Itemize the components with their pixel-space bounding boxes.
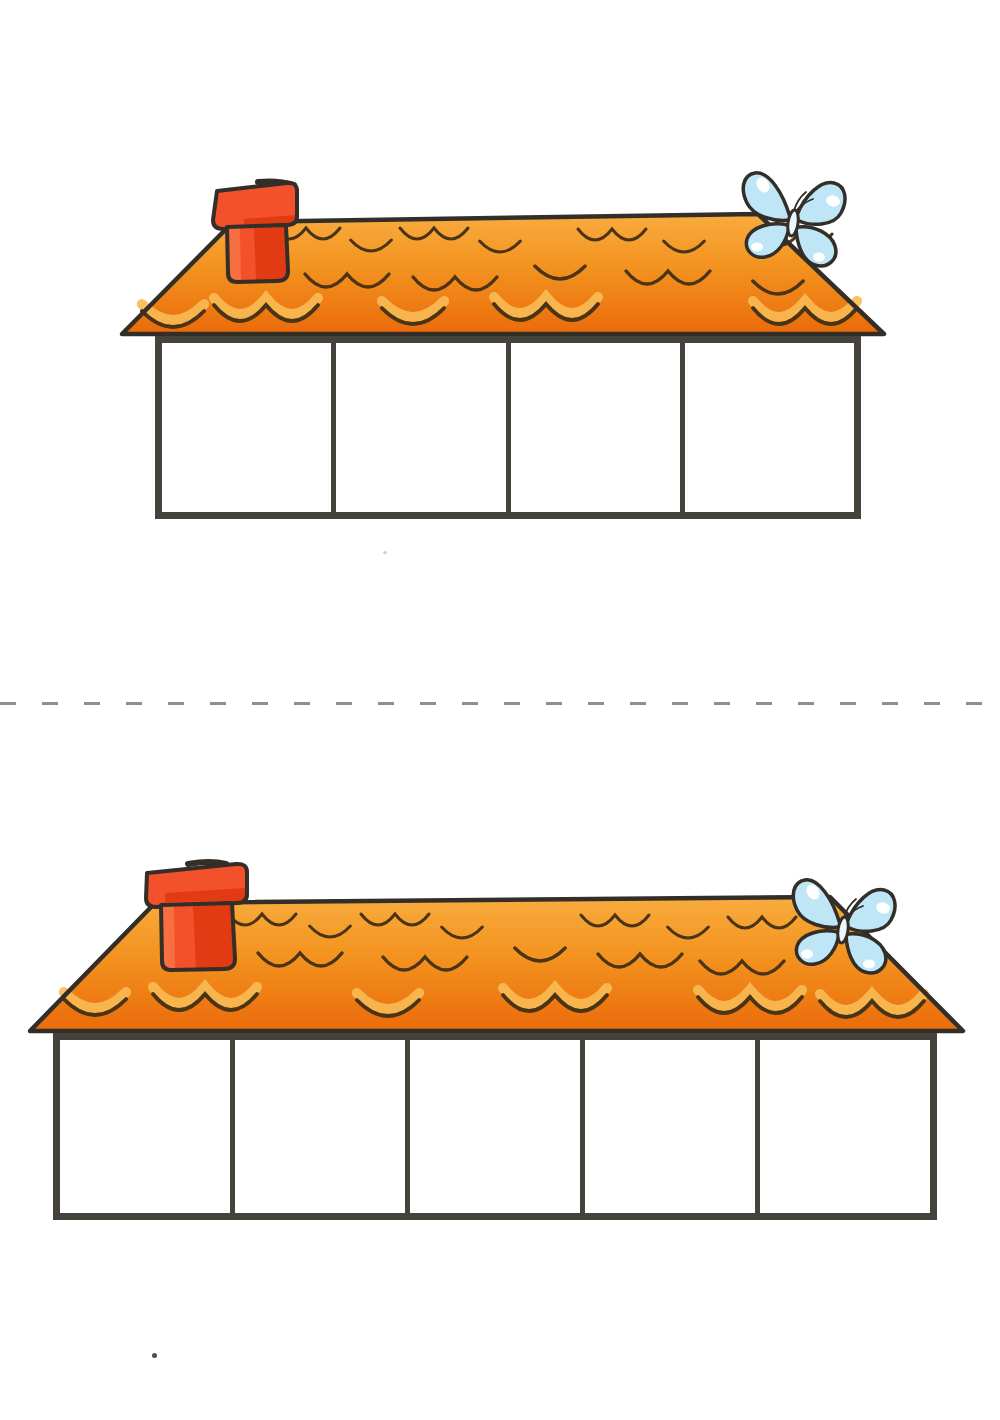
worksheet-page [0,0,1000,1420]
chimney [146,862,247,970]
print-speck [152,1353,157,1358]
chimney [213,181,297,282]
empty-box [162,343,331,512]
empty-box [60,1040,230,1213]
empty-box [511,343,680,512]
house-bottom-boxes [53,1033,937,1220]
house-top-boxes [155,336,861,519]
house-bottom [30,862,963,1031]
empty-box [336,343,505,512]
roof [30,897,963,1031]
empty-box [760,1040,930,1213]
empty-box [410,1040,580,1213]
cut-line [0,702,1000,705]
butterfly-icon [793,880,895,973]
roof-tiles [142,228,857,327]
empty-box [235,1040,405,1213]
empty-box [585,1040,755,1213]
roof-tiles [64,914,924,1017]
house-top [122,173,884,334]
roof [122,214,884,334]
butterfly-icon [743,173,845,266]
empty-box [685,343,854,512]
print-speck [383,551,387,554]
